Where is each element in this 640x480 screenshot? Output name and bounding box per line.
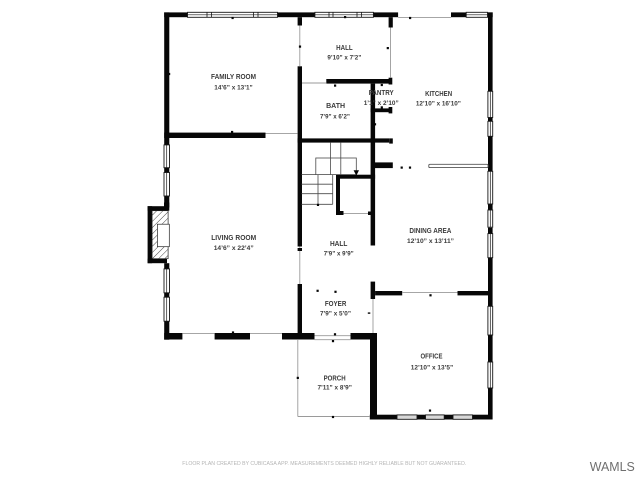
svg-text:KITCHEN: KITCHEN [425,91,452,98]
svg-text:9’10” x 7’2”: 9’10” x 7’2” [327,55,361,62]
svg-text:12’10” x 16’10”: 12’10” x 16’10” [416,101,461,108]
svg-text:7’11” x 8’9”: 7’11” x 8’9” [317,385,352,392]
svg-text:7’9” x 6’2”: 7’9” x 6’2” [320,114,350,121]
svg-text:LIVING ROOM: LIVING ROOM [211,235,256,242]
svg-text:FLOOR PLAN CREATED BY CUBICASA: FLOOR PLAN CREATED BY CUBICASA APP. MEAS… [182,461,466,467]
svg-text:14’6” x 13’1”: 14’6” x 13’1” [214,85,253,92]
svg-text:7’9” x 5’0”: 7’9” x 5’0” [320,311,351,318]
svg-text:OFFICE: OFFICE [421,354,443,361]
svg-text:7’9” x 9’9”: 7’9” x 9’9” [324,251,354,258]
svg-text:HALL: HALL [330,241,348,248]
svg-text:FOYER: FOYER [325,301,347,308]
svg-text:PANTRY: PANTRY [369,90,394,97]
svg-text:1’1” x 2’10”: 1’1” x 2’10” [364,100,399,107]
svg-text:DINING AREA: DINING AREA [409,228,451,235]
svg-text:12’10” x 13’11”: 12’10” x 13’11” [407,238,454,245]
svg-text:PORCH: PORCH [324,375,346,382]
svg-text:HALL: HALL [336,45,353,52]
svg-text:BATH: BATH [326,103,345,110]
svg-text:WAMLS: WAMLS [590,459,635,474]
svg-text:14’6” x 22’4”: 14’6” x 22’4” [214,245,254,252]
svg-text:12’10” x 13’5”: 12’10” x 13’5” [411,365,454,372]
svg-text:FAMILY ROOM: FAMILY ROOM [211,74,256,81]
